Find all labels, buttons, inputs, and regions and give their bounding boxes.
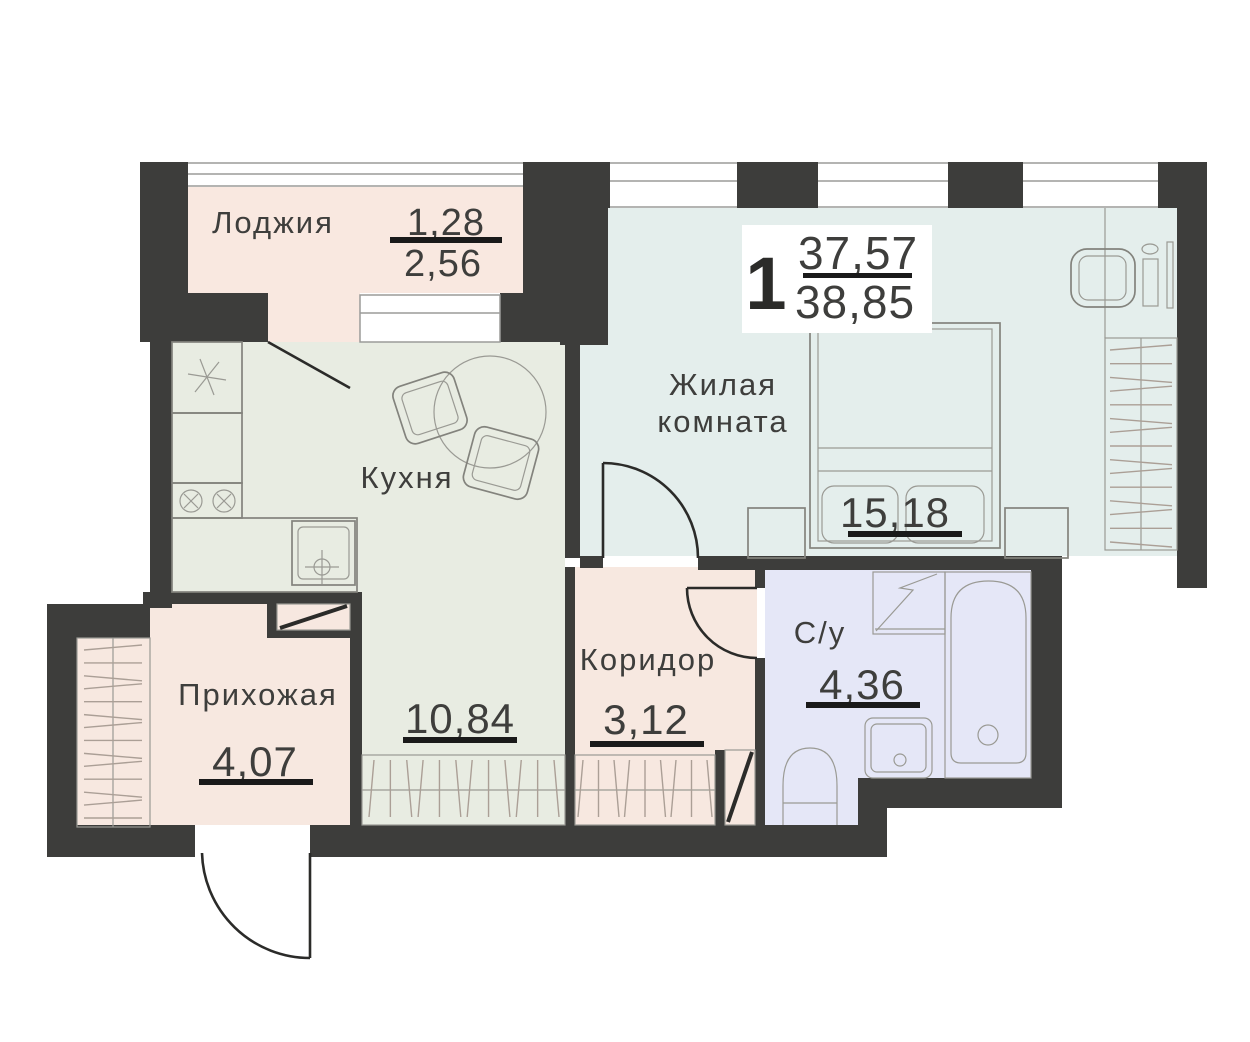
room-label-loggia: Лоджия — [212, 205, 334, 240]
wall — [560, 162, 610, 208]
living-window-3 — [1023, 162, 1158, 208]
summary-total-area: 38,85 — [795, 276, 915, 328]
room-area-kitchen: 10,84 — [405, 695, 515, 742]
wall — [715, 750, 725, 825]
area-underline — [390, 237, 502, 243]
room-label-bathroom: С/у — [794, 615, 847, 650]
wall — [737, 162, 818, 208]
floor-plan-page: 1 37,57 38,85 Лоджия 1,28 2,56 Жилая ком… — [0, 0, 1250, 1042]
room-area-bathroom: 4,36 — [819, 661, 905, 708]
room-area-loggia-full: 2,56 — [404, 243, 482, 285]
wall — [755, 658, 765, 825]
loggia-door-gap-floor — [268, 293, 360, 342]
wall — [565, 345, 580, 558]
wall — [47, 825, 887, 857]
entrance-opening — [195, 825, 310, 857]
loggia-window — [188, 162, 523, 187]
wall — [1177, 162, 1207, 588]
summary-box: 1 37,57 38,85 — [742, 225, 932, 333]
room-label-living-2: комната — [657, 404, 788, 439]
wall — [267, 630, 360, 638]
wall — [47, 604, 77, 857]
loggia-kitchen-window — [360, 295, 500, 342]
wall — [948, 162, 1023, 208]
wall — [143, 592, 362, 604]
area-underline — [806, 702, 920, 708]
room-label-hallway: Прихожая — [178, 677, 338, 712]
wall — [858, 778, 1062, 808]
wall — [47, 604, 150, 638]
wall — [580, 556, 603, 568]
living-window-1 — [610, 162, 737, 208]
room-area-hallway: 4,07 — [212, 738, 298, 785]
room-area-living: 15,18 — [840, 489, 950, 536]
room-area-corridor: 3,12 — [603, 696, 689, 743]
area-underline — [590, 741, 704, 747]
area-underline — [199, 779, 313, 785]
wall — [150, 342, 172, 608]
wall — [755, 570, 765, 588]
room-label-corridor: Коридор — [580, 642, 716, 677]
area-underline — [848, 531, 962, 537]
wall — [565, 567, 575, 825]
wall — [140, 293, 268, 342]
wall — [140, 162, 188, 293]
floor-plan: 1 37,57 38,85 Лоджия 1,28 2,56 Жилая ком… — [0, 0, 1250, 1042]
area-underline — [403, 737, 517, 743]
summary-rooms-count: 1 — [745, 242, 786, 325]
living-window-2 — [818, 162, 948, 208]
summary-living-area: 37,57 — [798, 227, 918, 279]
room-label-living-1: Жилая — [669, 367, 777, 402]
wall — [1031, 556, 1062, 808]
wall — [560, 208, 608, 345]
entrance-door — [202, 853, 310, 958]
room-label-kitchen: Кухня — [361, 460, 454, 495]
